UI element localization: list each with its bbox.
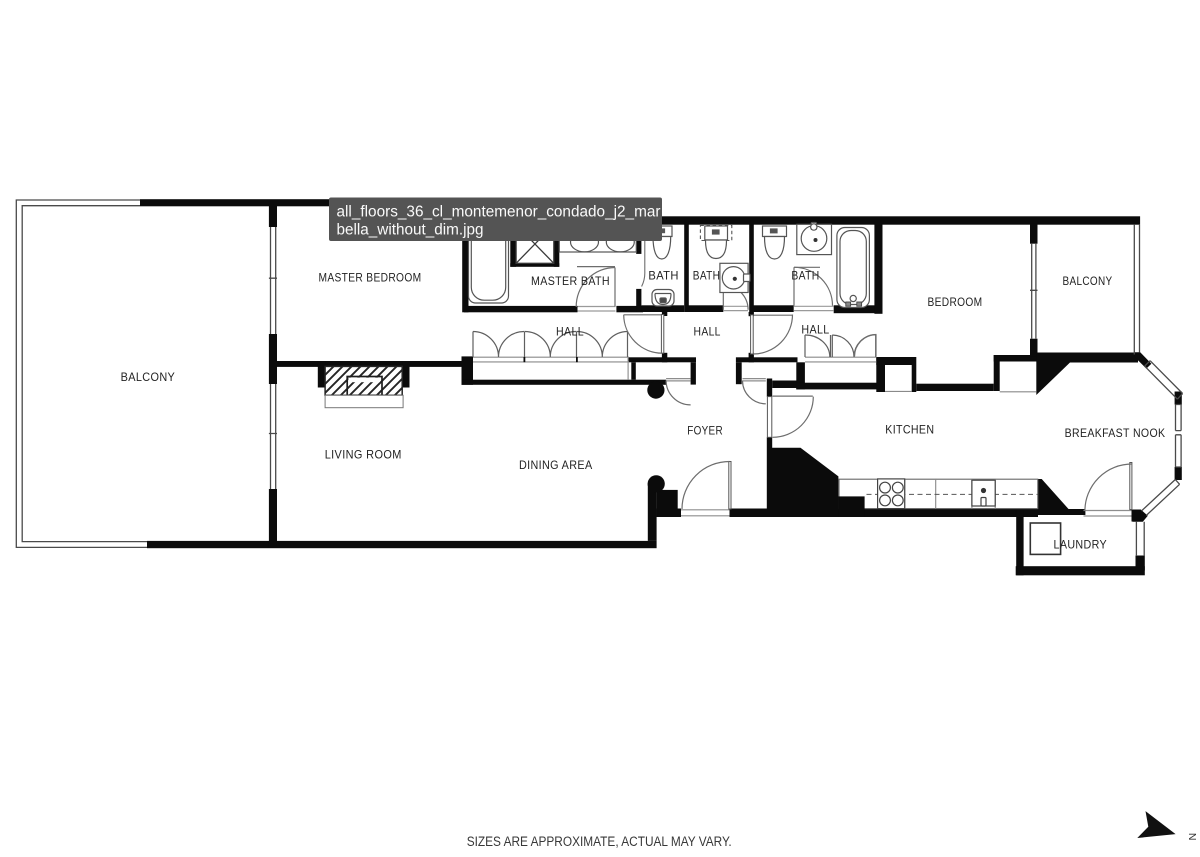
- svg-text:all_floors_36_cl_montemenor_co: all_floors_36_cl_montemenor_condado_j2_m…: [337, 204, 661, 221]
- svg-text:BALCONY: BALCONY: [121, 370, 176, 384]
- svg-text:HALL: HALL: [694, 325, 721, 339]
- svg-text:bella_without_dim.jpg: bella_without_dim.jpg: [337, 222, 484, 239]
- svg-text:SIZES ARE APPROXIMATE, ACTUAL: SIZES ARE APPROXIMATE, ACTUAL MAY VARY.: [467, 834, 732, 849]
- svg-text:N: N: [1186, 833, 1198, 841]
- svg-text:BATH: BATH: [648, 269, 678, 283]
- svg-text:BEDROOM: BEDROOM: [928, 295, 983, 309]
- svg-text:HALL: HALL: [556, 325, 584, 339]
- svg-text:BALCONY: BALCONY: [1063, 274, 1113, 288]
- svg-text:BATH: BATH: [693, 269, 721, 283]
- svg-text:MASTER BATH: MASTER BATH: [531, 274, 610, 288]
- svg-text:BREAKFAST NOOK: BREAKFAST NOOK: [1065, 426, 1166, 440]
- svg-text:MASTER BEDROOM: MASTER BEDROOM: [319, 271, 422, 285]
- svg-text:KITCHEN: KITCHEN: [885, 423, 934, 437]
- svg-text:DINING AREA: DINING AREA: [519, 458, 593, 472]
- svg-text:LAUNDRY: LAUNDRY: [1054, 538, 1108, 552]
- svg-text:BATH: BATH: [791, 269, 819, 283]
- svg-text:HALL: HALL: [801, 323, 829, 337]
- svg-text:FOYER: FOYER: [687, 424, 723, 438]
- svg-text:LIVING ROOM: LIVING ROOM: [325, 448, 402, 462]
